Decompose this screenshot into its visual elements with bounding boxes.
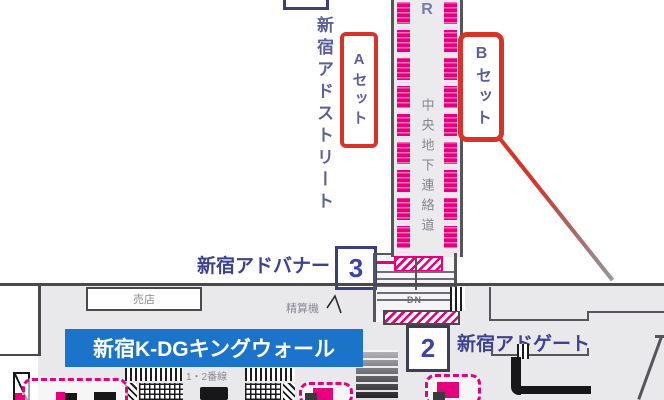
fare-machine-pointer: [324, 291, 350, 317]
ticket-gates-left-grid: [139, 383, 183, 400]
kiosk-label: 売店: [133, 291, 155, 307]
ad-chip-7: [433, 392, 445, 400]
set-b-label: Bセット: [469, 45, 493, 130]
gate-position-bar: [383, 310, 460, 325]
left-room-wall-h: [0, 354, 40, 356]
ad-street-label: 新宿アドストリート: [311, 16, 336, 214]
ad-chip-3: [94, 392, 116, 400]
ad-gate-number-box: 2: [406, 325, 450, 372]
stairs-dn-label: DN: [407, 295, 422, 305]
cut-off-marker-box: [283, 0, 329, 10]
ad-chip-5: [305, 393, 317, 400]
ticket-gates-left: [125, 368, 183, 381]
ad-chip-1: [56, 392, 65, 400]
banner-position-bar: [394, 256, 443, 272]
ticket-gate-corridor: [450, 287, 465, 311]
right-room-wall-v1: [489, 287, 491, 321]
concourse-wall: [0, 283, 664, 286]
corridor-name-label-wrap: 中央地下連絡道: [391, 98, 463, 238]
set-a-highlight-box: Aセット: [340, 32, 378, 148]
stair-stub: [376, 253, 391, 255]
banner-connector-line: [377, 261, 395, 264]
left-room-wall-v: [38, 286, 41, 356]
ticket-gates-right: [245, 368, 295, 381]
stair-wall-left: [373, 253, 376, 322]
fare-machine-label: 精算機: [286, 300, 319, 316]
right-diagonal-stub: [655, 335, 664, 338]
ad-gate-number: 2: [421, 333, 435, 364]
set-b-leader-line: [499, 138, 614, 281]
ad-chip-2: [65, 393, 77, 400]
right-room-wall-stub2: [491, 348, 493, 356]
corridor-name-label: 中央地下連絡道: [418, 98, 437, 238]
ticket-gates-right-grid: [245, 383, 281, 400]
set-b-highlight-box: Bセット: [458, 32, 504, 142]
station-floor-map: R 中央地下連絡道 新宿アドストリート Aセット Bセット 新宿アドバナー 3 …: [0, 0, 664, 400]
platform-label: 1・2番線: [186, 368, 227, 383]
right-room-wall-stub3: [587, 348, 589, 356]
right-room-wall-h1: [489, 319, 589, 321]
king-wall-banner: 新宿K-DGキングウォール: [65, 329, 363, 367]
right-room-wall-stub1: [587, 311, 589, 320]
kiosk-box: 売店: [86, 287, 202, 311]
ad-banner-number: 3: [349, 253, 363, 284]
route-letter: R: [391, 1, 463, 19]
ad-banner-label: 新宿アドバナー: [168, 251, 330, 278]
gate-machine-block: [200, 387, 228, 400]
ticket-gates-right-diag: [283, 383, 295, 400]
right-room-wall-h3: [491, 354, 589, 356]
set-a-label: Aセット: [349, 51, 370, 129]
right-thick-wall-h: [515, 386, 591, 394]
king-wall-label: 新宿K-DGキングウォール: [93, 333, 335, 363]
right-room-wall-h2: [587, 311, 664, 313]
